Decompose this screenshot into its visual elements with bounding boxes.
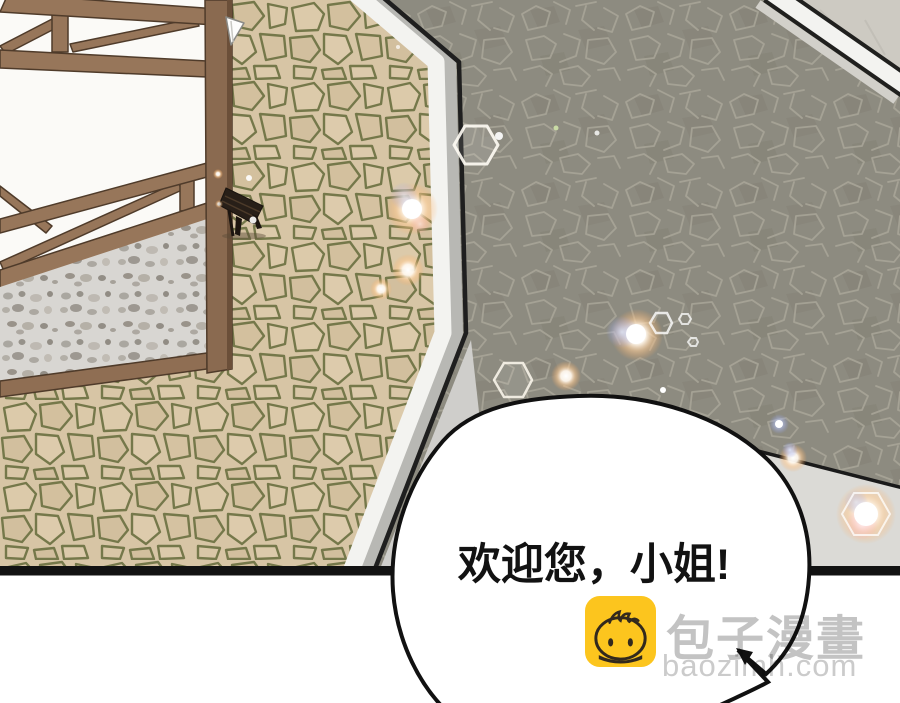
sparkle-core — [626, 324, 646, 344]
corner-post-shade — [227, 0, 232, 370]
sparkle-core — [402, 199, 422, 219]
sparkle-orb — [782, 442, 798, 458]
sparkle-dot — [215, 200, 223, 208]
bench-shadow — [222, 233, 266, 240]
sparkle-dot — [213, 169, 223, 179]
sparkle-dot — [246, 175, 252, 181]
timber-building — [0, 0, 244, 397]
sparkle-dot — [660, 387, 666, 393]
sparkle-hexagon — [494, 363, 532, 397]
sparkle-core — [854, 502, 878, 526]
comic-panel-image: 欢迎您，小姐! 包子漫畫 baozimh.com — [0, 0, 900, 703]
sparkle-orb — [392, 254, 424, 286]
sparkle-dot — [396, 45, 400, 49]
sparkle-dot — [250, 217, 257, 224]
sparkle-dot — [554, 126, 559, 131]
sparkle-orb — [370, 278, 392, 300]
sparkle-dot — [495, 132, 503, 140]
sparkle-dot — [595, 131, 600, 136]
sparkle-core — [775, 420, 783, 428]
sparkle-orb — [551, 361, 581, 391]
scene-artwork — [0, 0, 900, 703]
speech-bubble-text: 欢迎您，小姐! — [444, 530, 744, 592]
sparkle-hexagon — [454, 126, 498, 164]
